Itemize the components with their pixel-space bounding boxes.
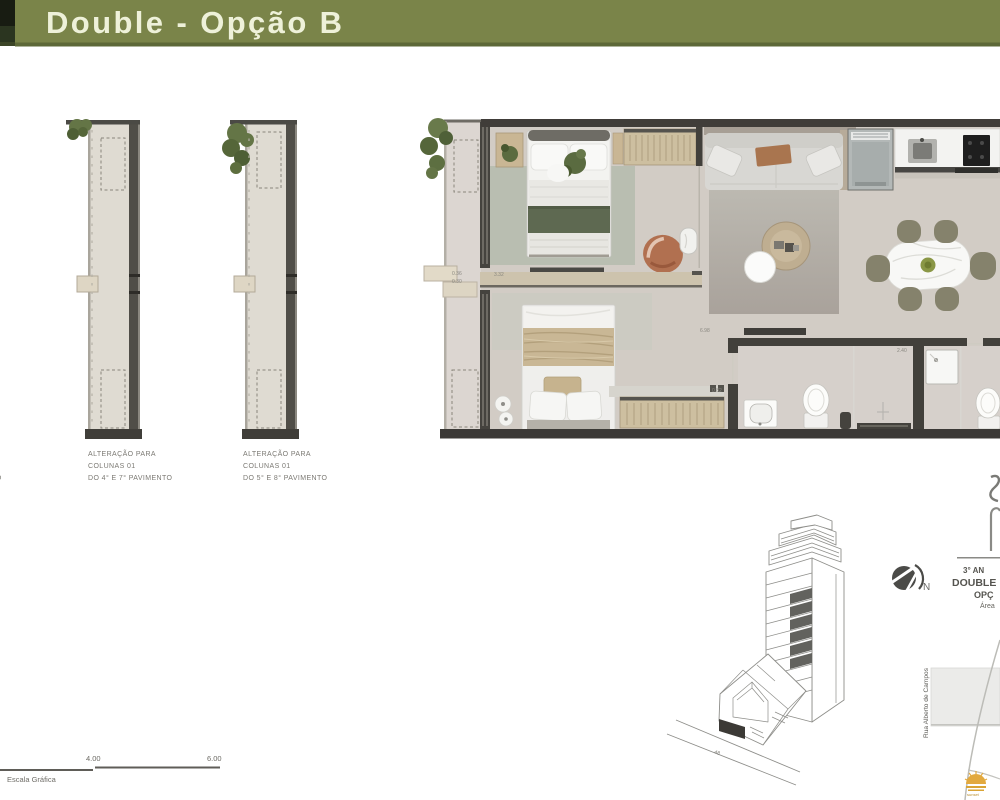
svg-text:4.00: 4.00: [86, 754, 101, 763]
svg-text:3° AN: 3° AN: [963, 566, 984, 575]
svg-text:DOUBLE: DOUBLE: [952, 577, 996, 589]
svg-text:N: N: [923, 582, 930, 593]
svg-text:COLUNAS 01: COLUNAS 01: [88, 463, 136, 470]
svg-text:0.36: 0.36: [452, 271, 462, 277]
svg-text:DO 4° E 7° PAVIMENTO: DO 4° E 7° PAVIMENTO: [88, 474, 173, 482]
svg-text:6.00: 6.00: [207, 754, 222, 763]
svg-text:sunset: sunset: [967, 792, 980, 797]
svg-text:48: 48: [713, 749, 721, 757]
svg-text:COLUNAS 01: COLUNAS 01: [243, 463, 291, 470]
svg-text:OPÇ: OPÇ: [974, 590, 994, 600]
svg-text:ALTERAÇÃO PARA: ALTERAÇÃO PARA: [88, 449, 156, 458]
svg-text:TO: TO: [0, 473, 1, 482]
svg-text:3.32: 3.32: [494, 272, 504, 278]
svg-text:2.40: 2.40: [897, 348, 907, 354]
svg-text:6.98: 6.98: [700, 328, 710, 334]
svg-text:DO 5° E 8° PAVIMENTO: DO 5° E 8° PAVIMENTO: [243, 474, 328, 482]
svg-text:Área: Área: [980, 601, 995, 610]
svg-text:Escala Gráfica: Escala Gráfica: [7, 775, 57, 784]
svg-text:0.30: 0.30: [452, 279, 462, 285]
svg-text:Rua Alberto de Campos: Rua Alberto de Campos: [923, 667, 930, 738]
svg-text:Double - Opção B: Double - Opção B: [46, 5, 344, 40]
svg-text:ALTERAÇÃO PARA: ALTERAÇÃO PARA: [243, 449, 311, 458]
svg-text:0.82: 0.82: [712, 388, 722, 394]
